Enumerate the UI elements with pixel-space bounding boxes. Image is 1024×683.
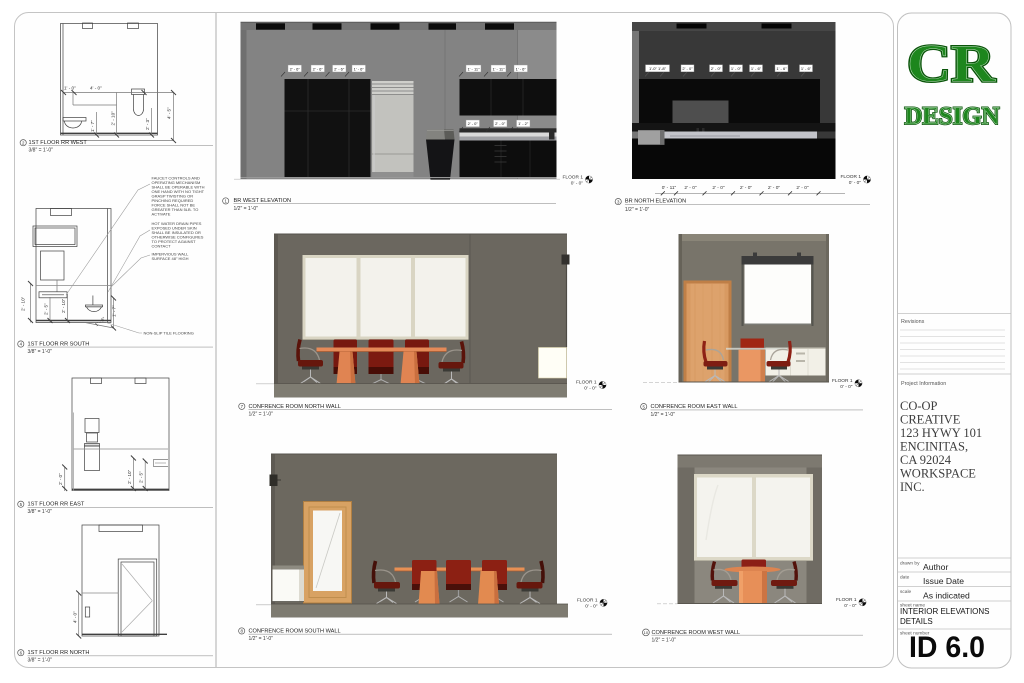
svg-text:DESIGN: DESIGN bbox=[905, 103, 1000, 130]
svg-text:3/8" = 1'-0": 3/8" = 1'-0" bbox=[29, 148, 54, 154]
svg-text:3/8" = 1'-0": 3/8" = 1'-0" bbox=[28, 658, 53, 664]
svg-text:WORKSPACE: WORKSPACE bbox=[900, 467, 976, 481]
svg-text:2' - 10": 2' - 10" bbox=[111, 111, 116, 126]
svg-text:NON-SLIP TILE FLOORING: NON-SLIP TILE FLOORING bbox=[144, 331, 194, 336]
svg-text:FLOOR 1: FLOOR 1 bbox=[836, 597, 857, 603]
svg-text:2' - 0": 2' - 0" bbox=[711, 66, 722, 71]
svg-text:1' - 6": 1' - 6" bbox=[516, 66, 527, 71]
svg-text:2' - 10": 2' - 10" bbox=[21, 296, 26, 311]
svg-text:2' - 5": 2' - 5" bbox=[139, 471, 144, 483]
svg-text:1'-0" 1'-8": 1'-0" 1'-8" bbox=[649, 66, 667, 71]
svg-text:123 HYWY 101: 123 HYWY 101 bbox=[900, 426, 982, 440]
svg-text:CREATIVE: CREATIVE bbox=[900, 413, 961, 427]
svg-text:2' - 6": 2' - 6" bbox=[290, 66, 301, 71]
svg-text:1' - 7": 1' - 7" bbox=[90, 120, 95, 132]
svg-text:ENCINITAS,: ENCINITAS, bbox=[900, 440, 968, 454]
svg-text:4' - 5": 4' - 5" bbox=[167, 107, 172, 119]
svg-text:2' - 0": 2' - 0" bbox=[58, 473, 63, 485]
svg-text:1' - 6": 1' - 6" bbox=[354, 66, 365, 71]
svg-text:1' - 0": 1' - 0" bbox=[64, 86, 76, 91]
svg-text:0' - 0": 0' - 0" bbox=[844, 603, 857, 609]
svg-text:2' - 10": 2' - 10" bbox=[127, 469, 132, 484]
svg-text:1/2" = 1'-0": 1/2" = 1'-0" bbox=[249, 636, 274, 642]
svg-text:1ST FLOOR RR NORTH: 1ST FLOOR RR NORTH bbox=[28, 650, 90, 656]
svg-text:1ST FLOOR RR SOUTH: 1ST FLOOR RR SOUTH bbox=[28, 341, 90, 347]
svg-text:1ST FLOOR RR WEST: 1ST FLOOR RR WEST bbox=[29, 140, 88, 146]
svg-text:2' - 6": 2' - 6" bbox=[334, 66, 345, 71]
svg-text:0' - 0": 0' - 0" bbox=[840, 384, 853, 390]
svg-text:Project Information: Project Information bbox=[901, 381, 946, 387]
svg-text:2' - 10": 2' - 10" bbox=[61, 298, 66, 313]
svg-text:Revisions: Revisions bbox=[901, 319, 925, 325]
svg-text:10: 10 bbox=[644, 630, 649, 635]
svg-text:1' - 6": 1' - 6" bbox=[751, 66, 762, 71]
svg-text:1/2" = 1'-0": 1/2" = 1'-0" bbox=[625, 207, 650, 213]
svg-text:SURFACE 48" HIGH: SURFACE 48" HIGH bbox=[152, 256, 189, 261]
svg-text:BR WEST ELEVATION: BR WEST ELEVATION bbox=[234, 198, 292, 204]
svg-text:3/8" = 1'-0": 3/8" = 1'-0" bbox=[28, 349, 53, 355]
svg-text:2' - 0": 2' - 0" bbox=[495, 121, 506, 126]
svg-text:CONFRENCE ROOM WEST WALL: CONFRENCE ROOM WEST WALL bbox=[652, 630, 741, 636]
svg-text:CA 92024: CA 92024 bbox=[900, 453, 952, 467]
svg-text:1' - 7": 1' - 7" bbox=[112, 305, 117, 317]
svg-text:1' - 6": 1' - 6" bbox=[801, 66, 812, 71]
svg-text:1/2" = 1'-0": 1/2" = 1'-0" bbox=[234, 206, 259, 212]
svg-text:1' - 6": 1' - 6" bbox=[776, 66, 787, 71]
svg-text:FLOOR 1: FLOOR 1 bbox=[832, 378, 853, 384]
svg-text:FLOOR 1: FLOOR 1 bbox=[562, 175, 583, 181]
svg-text:1ST FLOOR RR EAST: 1ST FLOOR RR EAST bbox=[28, 502, 85, 508]
svg-text:CONFRENCE ROOM EAST WALL: CONFRENCE ROOM EAST WALL bbox=[651, 404, 738, 410]
svg-text:drawn by: drawn by bbox=[900, 561, 920, 567]
svg-text:Author: Author bbox=[923, 562, 948, 572]
svg-text:2' - 0": 2' - 0" bbox=[768, 185, 781, 191]
svg-text:2' - 0": 2' - 0" bbox=[682, 66, 693, 71]
svg-text:FLOOR 1: FLOOR 1 bbox=[577, 598, 598, 604]
svg-text:2' - 0": 2' - 0" bbox=[468, 121, 479, 126]
svg-text:FLOOR 1: FLOOR 1 bbox=[576, 380, 597, 386]
svg-text:3/8" = 1'-0": 3/8" = 1'-0" bbox=[28, 509, 53, 515]
svg-text:2' - 6": 2' - 6" bbox=[313, 66, 324, 71]
svg-text:ID 6.0: ID 6.0 bbox=[909, 631, 985, 664]
svg-text:0' - 0": 0' - 0" bbox=[585, 604, 598, 610]
svg-text:1' - 11": 1' - 11" bbox=[467, 66, 480, 71]
svg-text:INC.: INC. bbox=[900, 480, 925, 494]
svg-text:INTERIOR ELEVATIONS: INTERIOR ELEVATIONS bbox=[900, 607, 990, 616]
svg-text:1' - 11": 1' - 11" bbox=[492, 66, 505, 71]
svg-text:2' - 0": 2' - 0" bbox=[712, 185, 725, 191]
svg-text:BR NORTH ELEVATION: BR NORTH ELEVATION bbox=[625, 199, 686, 205]
svg-text:4' - 0": 4' - 0" bbox=[90, 86, 102, 91]
svg-text:scale: scale bbox=[900, 589, 912, 595]
svg-text:FLOOR 1: FLOOR 1 bbox=[840, 174, 861, 180]
svg-text:CR: CR bbox=[907, 35, 996, 93]
svg-text:CONFRENCE ROOM NORTH WALL: CONFRENCE ROOM NORTH WALL bbox=[249, 404, 341, 410]
svg-text:2' - 0": 2' - 0" bbox=[684, 185, 697, 191]
svg-text:ACTIVATE: ACTIVATE bbox=[152, 212, 171, 217]
svg-text:1/2" = 1'-0": 1/2" = 1'-0" bbox=[651, 412, 676, 418]
svg-text:CONTACT: CONTACT bbox=[152, 244, 172, 249]
svg-text:0' - 0": 0' - 0" bbox=[571, 181, 584, 187]
svg-text:1' - 0": 1' - 0" bbox=[731, 66, 742, 71]
svg-text:4' - 0": 4' - 0" bbox=[73, 611, 78, 623]
svg-text:2' - 3": 2' - 3" bbox=[145, 118, 150, 130]
svg-text:0' - 0": 0' - 0" bbox=[849, 180, 862, 186]
svg-text:DETAILS: DETAILS bbox=[900, 617, 933, 626]
svg-text:CO-OP: CO-OP bbox=[900, 399, 938, 413]
svg-text:2' - 0": 2' - 0" bbox=[796, 185, 809, 191]
svg-text:As indicated: As indicated bbox=[923, 591, 970, 601]
svg-text:0' - 0": 0' - 0" bbox=[584, 386, 597, 392]
svg-text:0' - 11": 0' - 11" bbox=[662, 185, 677, 191]
svg-text:2' - 5": 2' - 5" bbox=[44, 303, 49, 315]
svg-text:1/2" = 1'-0": 1/2" = 1'-0" bbox=[249, 412, 274, 418]
svg-text:CONFRENCE ROOM SOUTH WALL: CONFRENCE ROOM SOUTH WALL bbox=[249, 628, 341, 634]
svg-text:1' - 2": 1' - 2" bbox=[518, 121, 529, 126]
svg-text:1/2" = 1'-0": 1/2" = 1'-0" bbox=[652, 638, 677, 644]
svg-text:Issue Date: Issue Date bbox=[923, 576, 964, 586]
svg-text:date: date bbox=[900, 575, 910, 581]
svg-text:2' - 0": 2' - 0" bbox=[740, 185, 753, 191]
